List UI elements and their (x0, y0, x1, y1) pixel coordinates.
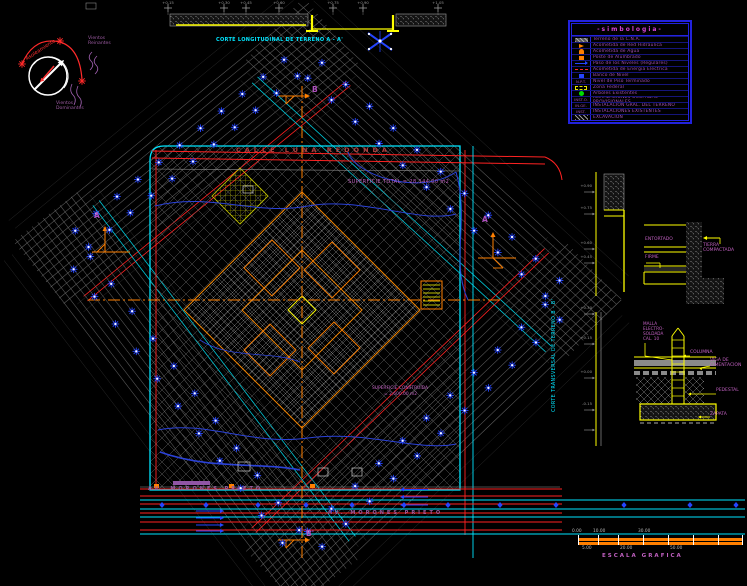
pedestal-label: PEDESTAL (716, 389, 739, 394)
wind-arrows-icon (71, 52, 98, 107)
ruler-mark: +0.60 (570, 241, 592, 245)
tierra-compactada-label: TIERRA COMPACTADA (703, 244, 745, 254)
level-mark: +1.05 (427, 1, 449, 5)
zapata-label: ZAPATA (710, 413, 727, 418)
scale-tick-label: 5.00 (582, 546, 592, 551)
power-line-icon (575, 69, 588, 70)
top-section-caption: CORTE LONGITUDINAL DE TERRENO A - A' (216, 38, 343, 44)
viga-label: VIGA DE CIMENTACION (710, 359, 746, 369)
legend-label: EXCAVACION (591, 115, 623, 120)
street-top-label: CALLE LUNA REDONDA (236, 147, 391, 154)
entortado-label: ENTORTADO (645, 238, 673, 243)
excavation-swatch-icon (575, 115, 588, 120)
ruler-mark: +0.45 (570, 255, 592, 259)
north-symbol-icon (368, 31, 392, 52)
level-mark: +0.45 (235, 1, 257, 5)
surface-built-label-2: = 2,600.00 m2 (384, 393, 417, 398)
ruler-mark: +0.90 (570, 184, 592, 188)
scale-bar-caption: ESCALA GRAFICA (602, 553, 683, 559)
ruler-mark: +0.30 (570, 306, 592, 310)
columna-label: COLUMNA (690, 351, 713, 356)
scale-tick-label: 20.00 (620, 546, 632, 551)
winds-bottom-label: Vientos Dominantes (56, 101, 102, 111)
top-section-drawing (86, 3, 446, 31)
compass-rose-icon (29, 57, 68, 95)
scale-tick-label: 0.00 (572, 529, 582, 534)
terrain-swatch-icon (575, 38, 588, 42)
level-mark: +0.15 (157, 1, 179, 5)
street-bottom-right-label: AV. MORONES PRIETO (328, 511, 443, 517)
scale-tick-label: 10.00 (593, 529, 605, 534)
water-main-icon (579, 44, 584, 48)
vertical-section-caption: CORTE TRANSVERSAL DE TERRENO B - B' (552, 299, 557, 412)
cad-canvas: Asoleamiento Vientos Reinantes Vientos D… (0, 0, 747, 586)
federal-zone-icon (575, 86, 587, 90)
wall-details (584, 172, 724, 446)
level-mark: +0.30 (213, 1, 235, 5)
winds-top-label: Vientos Reinantes (88, 36, 128, 46)
malla-label-4: CAL. 10 (643, 337, 659, 342)
ruler-mark: +0.15 (570, 336, 592, 340)
section-marker-b-prime: B' (306, 530, 314, 538)
street-bottom-left-label: AV. MORONES PRIETO (148, 487, 263, 493)
legend-title: -simbologia- (572, 24, 688, 36)
level-mark: +0.75 (322, 1, 344, 5)
ruler-mark: +0.75 (570, 206, 592, 210)
section-marker-a: A (94, 212, 100, 220)
section-marker-a-prime: A' (482, 216, 490, 224)
legend-row: EXCAVACION (572, 114, 688, 120)
section-marker-b: B (312, 86, 318, 94)
firme-label: FIRME (645, 256, 659, 261)
lamp-post-icon (579, 56, 584, 60)
ruler-mark: +0.00 (570, 370, 592, 374)
benchmark-icon (579, 74, 584, 78)
scale-tick-label: 50.00 (670, 546, 682, 551)
level-mark: +0.60 (268, 1, 290, 5)
surface-total-label: SUPERFICIE TOTAL = 28,144.00 m2 (348, 180, 449, 186)
level-flow-icon (575, 63, 587, 64)
scale-tick-label: 30.00 (638, 529, 650, 534)
legend-panel: -simbologia- Terreno de la C.N.A. Acomet… (568, 20, 692, 124)
level-mark: +0.90 (352, 1, 374, 5)
ruler-mark: -0.15 (570, 402, 592, 406)
